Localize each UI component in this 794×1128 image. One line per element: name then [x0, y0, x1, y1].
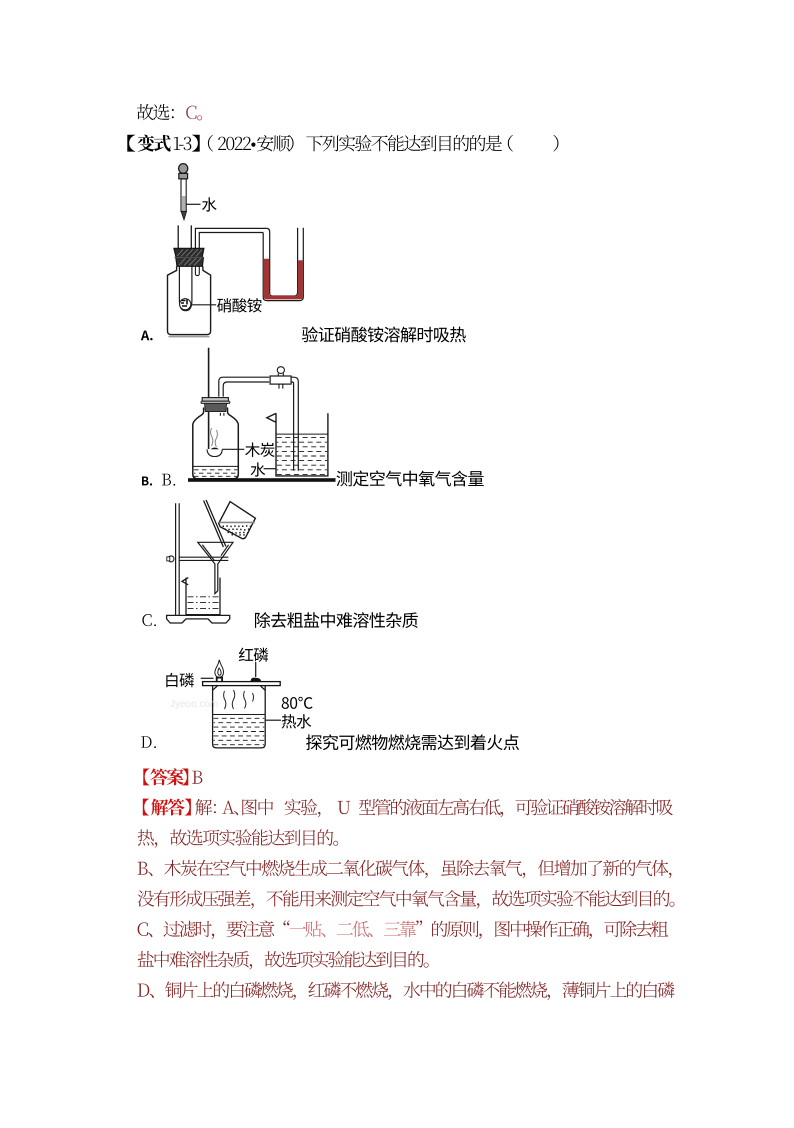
svg-text:Jyeoo.com: Jyeoo.com	[170, 699, 218, 710]
